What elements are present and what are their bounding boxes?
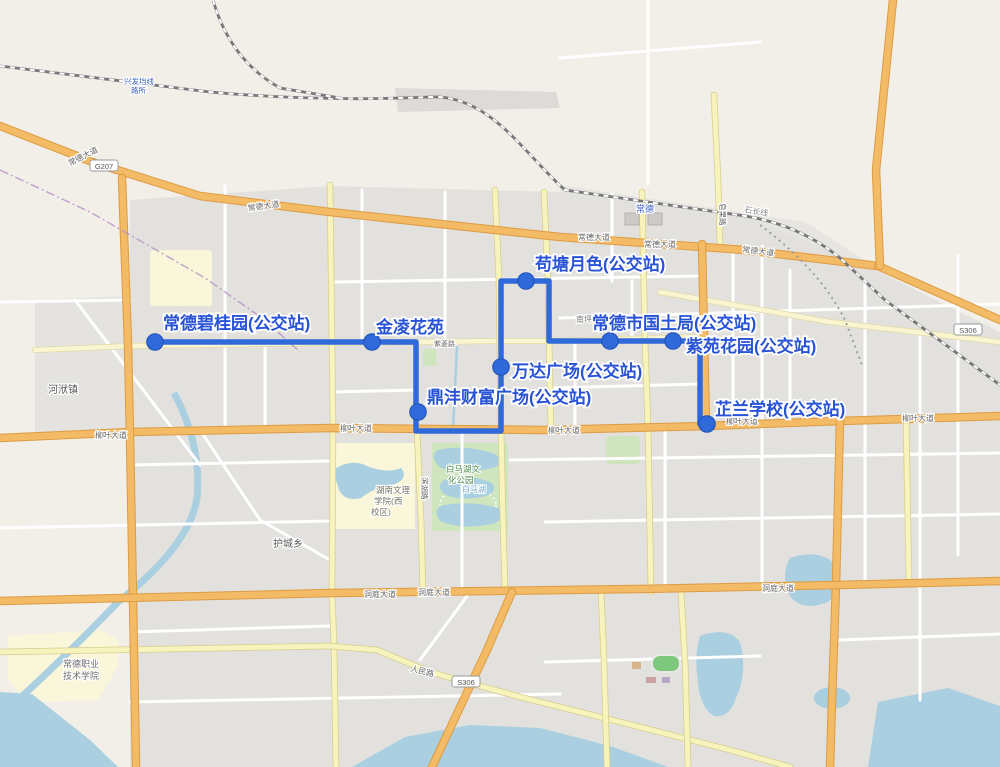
poi-label: 技术学院 <box>63 670 99 681</box>
station-building <box>625 213 639 225</box>
bus-stop-marker[interactable] <box>665 333 681 349</box>
bus-stop-label: 常德碧桂园(公交站) <box>163 313 310 333</box>
road-label: 常德大道 <box>644 239 676 249</box>
bus-stop-label: 芷兰学校(公交站) <box>715 399 845 419</box>
poi-label: 湖南文理 <box>376 485 411 495</box>
svg-text:S306: S306 <box>457 678 475 687</box>
baima-lake-south <box>436 503 501 526</box>
station-label: 常德 <box>636 203 654 214</box>
road-label: 皂果路 <box>718 203 728 226</box>
road-label: 洞庭大道 <box>762 583 794 593</box>
bus-stop-label: 鼎沣财富广场(公交站) <box>427 387 591 407</box>
poi-label: 常德职业 <box>63 658 99 669</box>
station-label: 路所 <box>131 85 146 95</box>
poi-label: 校区) <box>371 507 391 517</box>
bus-stop-label: 万达广场(公交站) <box>511 361 642 381</box>
town-label: 护城乡 <box>273 537 303 550</box>
road-label: 柳叶大道 <box>95 430 127 440</box>
park-label: 白马湖文 <box>446 464 481 474</box>
road-label: 柳叶大道 <box>902 413 934 423</box>
bus-stop-label: 常德市国土局(公交站) <box>592 313 756 333</box>
map-canvas[interactable]: 河洑镇护城乡常德职业技术学院湖南文理学院(西校区)白马湖文化公园白马湖南坪常德兴… <box>0 0 1000 767</box>
road-shield: S306 <box>452 676 480 687</box>
water-label: 白马湖 <box>462 484 486 494</box>
station-label: 兴发垱线 <box>124 76 154 86</box>
road-label: 洞庭大道 <box>418 587 450 597</box>
road-label: 紫菱路 <box>434 339 455 348</box>
bus-stop-marker[interactable] <box>147 334 163 350</box>
road-label: 滨湖路 <box>420 477 430 500</box>
bus-stop-label: 紫苑花园(公交站) <box>686 336 816 356</box>
bus-stop-marker[interactable] <box>493 359 509 375</box>
lake-east <box>785 554 839 605</box>
road-shield: S306 <box>954 324 982 335</box>
bus-stop-marker[interactable] <box>602 333 618 349</box>
road-shield: G207 <box>90 160 118 171</box>
park-label: 化公园 <box>448 475 474 485</box>
bus-stop-marker[interactable] <box>410 404 426 420</box>
bus-stop-label: 金凌花苑 <box>375 317 444 337</box>
bus-stop-label: 苟塘月色(公交站) <box>534 254 665 274</box>
bus-route-map[interactable]: 河洑镇护城乡常德职业技术学院湖南文理学院(西校区)白马湖文化公园白马湖南坪常德兴… <box>0 0 1000 767</box>
svg-text:S306: S306 <box>959 326 977 335</box>
station-building <box>648 213 662 225</box>
stadium-campus <box>614 648 690 696</box>
town-label: 河洑镇 <box>48 383 78 396</box>
road-label: 柳叶大道 <box>548 425 580 435</box>
svg-text:G207: G207 <box>95 162 113 171</box>
road-label: 常德大道 <box>578 232 610 242</box>
bus-stop-marker[interactable] <box>518 273 534 289</box>
district-label: 南坪 <box>576 314 592 324</box>
road-label: 柳叶大道 <box>340 423 372 433</box>
road-label: 洞庭大道 <box>364 589 396 599</box>
bus-stop-marker[interactable] <box>699 416 715 432</box>
poi-label: 学院(西 <box>374 496 402 506</box>
